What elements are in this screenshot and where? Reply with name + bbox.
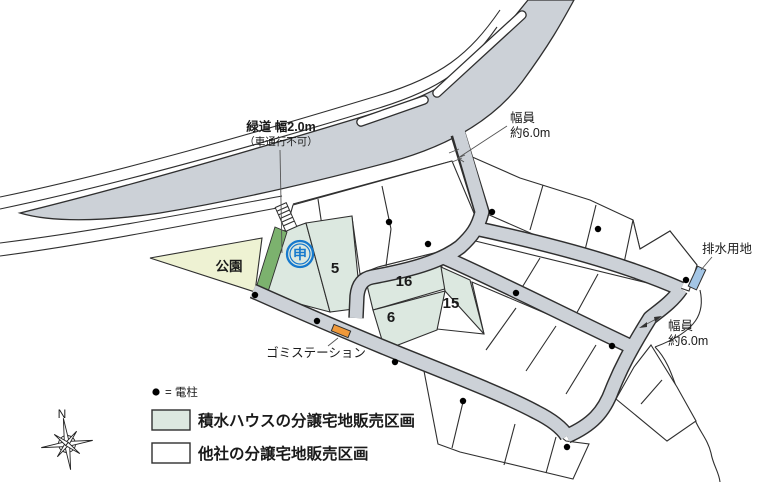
utility-pole-dot bbox=[460, 398, 466, 404]
utility-pole-dot bbox=[392, 359, 398, 365]
garbage-leader bbox=[328, 338, 338, 346]
compass-north-label: N bbox=[58, 407, 67, 421]
lot-16-number: 16 bbox=[396, 273, 413, 290]
subdivision-site-map: 申 5 16 15 6 公園 緑道 幅2.0m （車通行不可） 幅員 約6.0m… bbox=[0, 0, 760, 482]
utility-pole-dot bbox=[489, 209, 495, 215]
utility-pole-dot bbox=[425, 241, 431, 247]
road-width-top-line2: 約6.0m bbox=[510, 125, 550, 140]
application-mark-char: 申 bbox=[293, 246, 307, 262]
park-label: 公園 bbox=[216, 259, 243, 274]
compass-rose: N bbox=[38, 407, 97, 473]
other-company-lots bbox=[286, 156, 697, 479]
drainage-leader bbox=[701, 257, 712, 270]
road-width-top-line1: 幅員 bbox=[510, 110, 536, 125]
legend: = 電柱 積水ハウスの分譲宅地販売区画 他社の分譲宅地販売区画 bbox=[152, 385, 415, 463]
road-width-bottom-line1: 幅員 bbox=[668, 318, 694, 333]
site-map-svg: 申 5 16 15 6 公園 緑道 幅2.0m （車通行不可） 幅員 約6.0m… bbox=[0, 0, 760, 482]
pole-legend-text: = 電柱 bbox=[165, 385, 198, 399]
legend-label-sekisui: 積水ハウスの分譲宅地販売区画 bbox=[197, 411, 415, 430]
utility-pole-dot bbox=[386, 219, 392, 225]
utility-pole-dot bbox=[314, 318, 320, 324]
road-width-bottom-line2: 約6.0m bbox=[668, 333, 708, 348]
utility-pole-dot bbox=[252, 292, 258, 298]
utility-pole-dot bbox=[513, 290, 519, 296]
lot-5-number: 5 bbox=[331, 260, 339, 277]
park-area bbox=[150, 238, 262, 292]
lot-6-number: 6 bbox=[387, 309, 395, 326]
legend-swatch-other bbox=[152, 443, 190, 463]
garbage-label: ゴミステーション bbox=[266, 345, 366, 360]
lot-15-number: 15 bbox=[443, 295, 460, 312]
greenway-label-line2: （車通行不可） bbox=[244, 135, 318, 148]
drainage-label: 排水用地 bbox=[702, 242, 753, 256]
utility-pole-dot bbox=[683, 277, 689, 283]
utility-pole-dot bbox=[595, 226, 601, 232]
pole-legend-dot bbox=[152, 388, 159, 395]
utility-pole-dot bbox=[609, 343, 615, 349]
legend-label-other: 他社の分譲宅地販売区画 bbox=[197, 444, 369, 463]
legend-swatch-sekisui bbox=[152, 410, 190, 430]
greenway-label-line1: 緑道 幅2.0m bbox=[246, 119, 315, 134]
utility-pole-dot bbox=[564, 444, 570, 450]
